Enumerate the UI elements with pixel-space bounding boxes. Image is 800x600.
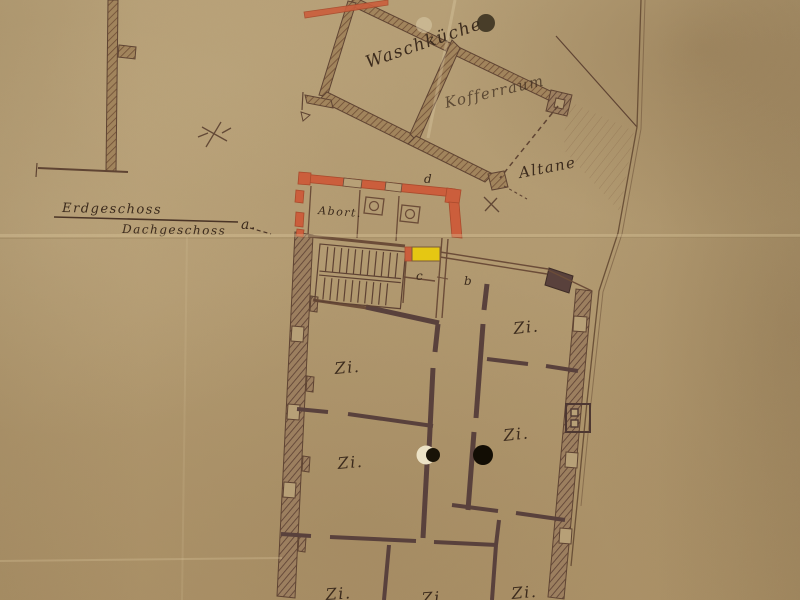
room-label-zimmer: Zi. [510, 582, 538, 600]
scanned-floor-plan-page: Erdgeschoss Dachgeschoss a. [0, 0, 800, 600]
room-label-zimmer: Zi. [501, 423, 530, 445]
punch-hole-dark [473, 445, 493, 465]
room-label-zimmer: Zi. [333, 357, 361, 378]
room-label-zimmer: Zi. [324, 583, 352, 600]
yellow-wall-highlight [405, 247, 440, 261]
label-marker-a: a. [241, 217, 257, 233]
room-label-zimmer: Zi. [420, 587, 448, 600]
room-label-zimmer: Zi. [336, 452, 364, 473]
label-erdgeschoss: Erdgeschoss [61, 201, 162, 218]
label-marker-b: b [464, 274, 472, 288]
punch-hole-dark [477, 14, 495, 32]
punch-hole-faint [416, 17, 432, 33]
paper-texture [0, 0, 800, 600]
label-marker-c: c [416, 269, 423, 283]
room-label-zimmer: Zi. [511, 316, 540, 338]
floor-plan-drawing: Erdgeschoss Dachgeschoss a. [0, 0, 800, 600]
label-marker-d: d [424, 172, 432, 186]
